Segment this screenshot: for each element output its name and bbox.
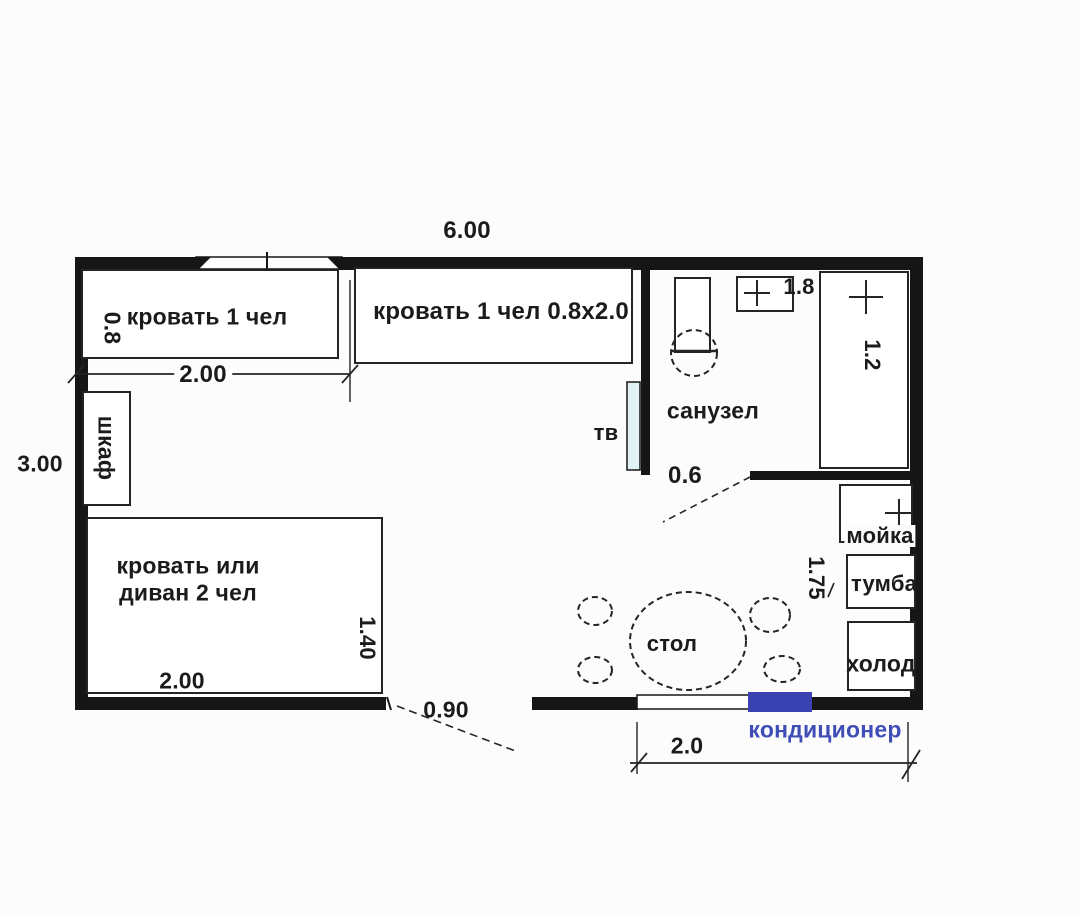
- kitchen-sink-label: мойка: [844, 525, 915, 547]
- wall-bottom-mid: [532, 697, 638, 710]
- chair-outline: [764, 656, 800, 682]
- toilet-tank-outline: [675, 278, 710, 352]
- bed1-label: кровать 1 чел: [127, 306, 288, 329]
- sofa-width-dim-label: 2.00: [159, 670, 205, 693]
- air-conditioner-block: [748, 692, 812, 712]
- wall-bathroom-horizontal: [750, 471, 923, 480]
- chair-outline: [750, 598, 790, 632]
- wardrobe-label: шкаф: [95, 416, 118, 480]
- floor-plan: 6.00 3.00 кровать 1 чел 0.8 2.00 кровать…: [0, 0, 1080, 915]
- chair-outline: [578, 597, 612, 625]
- sofa-outline: [87, 518, 382, 693]
- bathroom-door-dim-label: 0.6: [668, 464, 702, 488]
- bed1-depth-dim-label: 0.8: [101, 312, 124, 345]
- entry-door-tick: [387, 697, 391, 710]
- chair-outline: [578, 657, 612, 683]
- sofa-label-line2: диван 2 чел: [119, 582, 257, 605]
- wall-bathroom-vertical: [641, 257, 650, 475]
- tv-outline: [627, 382, 640, 470]
- furniture: [82, 268, 915, 693]
- cabinet-label: тумба: [851, 573, 917, 595]
- shower-dim-label: 1.2: [861, 339, 883, 370]
- air-conditioner-label: кондиционер: [748, 719, 901, 742]
- kitchen-dim-label: 1.75: [805, 556, 827, 600]
- bed2-label: кровать 1 чел 0.8x2.0: [373, 300, 629, 324]
- table-label: стол: [647, 633, 697, 655]
- wall-bottom-right: [811, 697, 923, 710]
- wall-bottom-left: [75, 697, 386, 710]
- dim-tick: [902, 750, 920, 779]
- window-dim-label: 2.0: [671, 735, 704, 758]
- overall-height-dim-label: 3.00: [17, 453, 63, 476]
- floor-plan-drawing: [0, 0, 1080, 915]
- window-bottom-frame: [637, 695, 750, 709]
- bathroom-label: санузел: [667, 400, 759, 423]
- sofa-depth-dim-label: 1.40: [356, 616, 378, 660]
- bath-sink-dim-label: 1.8: [783, 276, 814, 298]
- overall-width-dim-label: 6.00: [443, 219, 491, 243]
- tv-label: тв: [594, 422, 619, 444]
- bed1-width-dim-label: 2.00: [174, 363, 232, 387]
- sofa-label-line1: кровать или: [116, 555, 259, 578]
- fridge-label: холод: [846, 653, 915, 676]
- window-top-frame: [196, 257, 342, 269]
- entry-door-dim-label: 0.90: [423, 699, 469, 722]
